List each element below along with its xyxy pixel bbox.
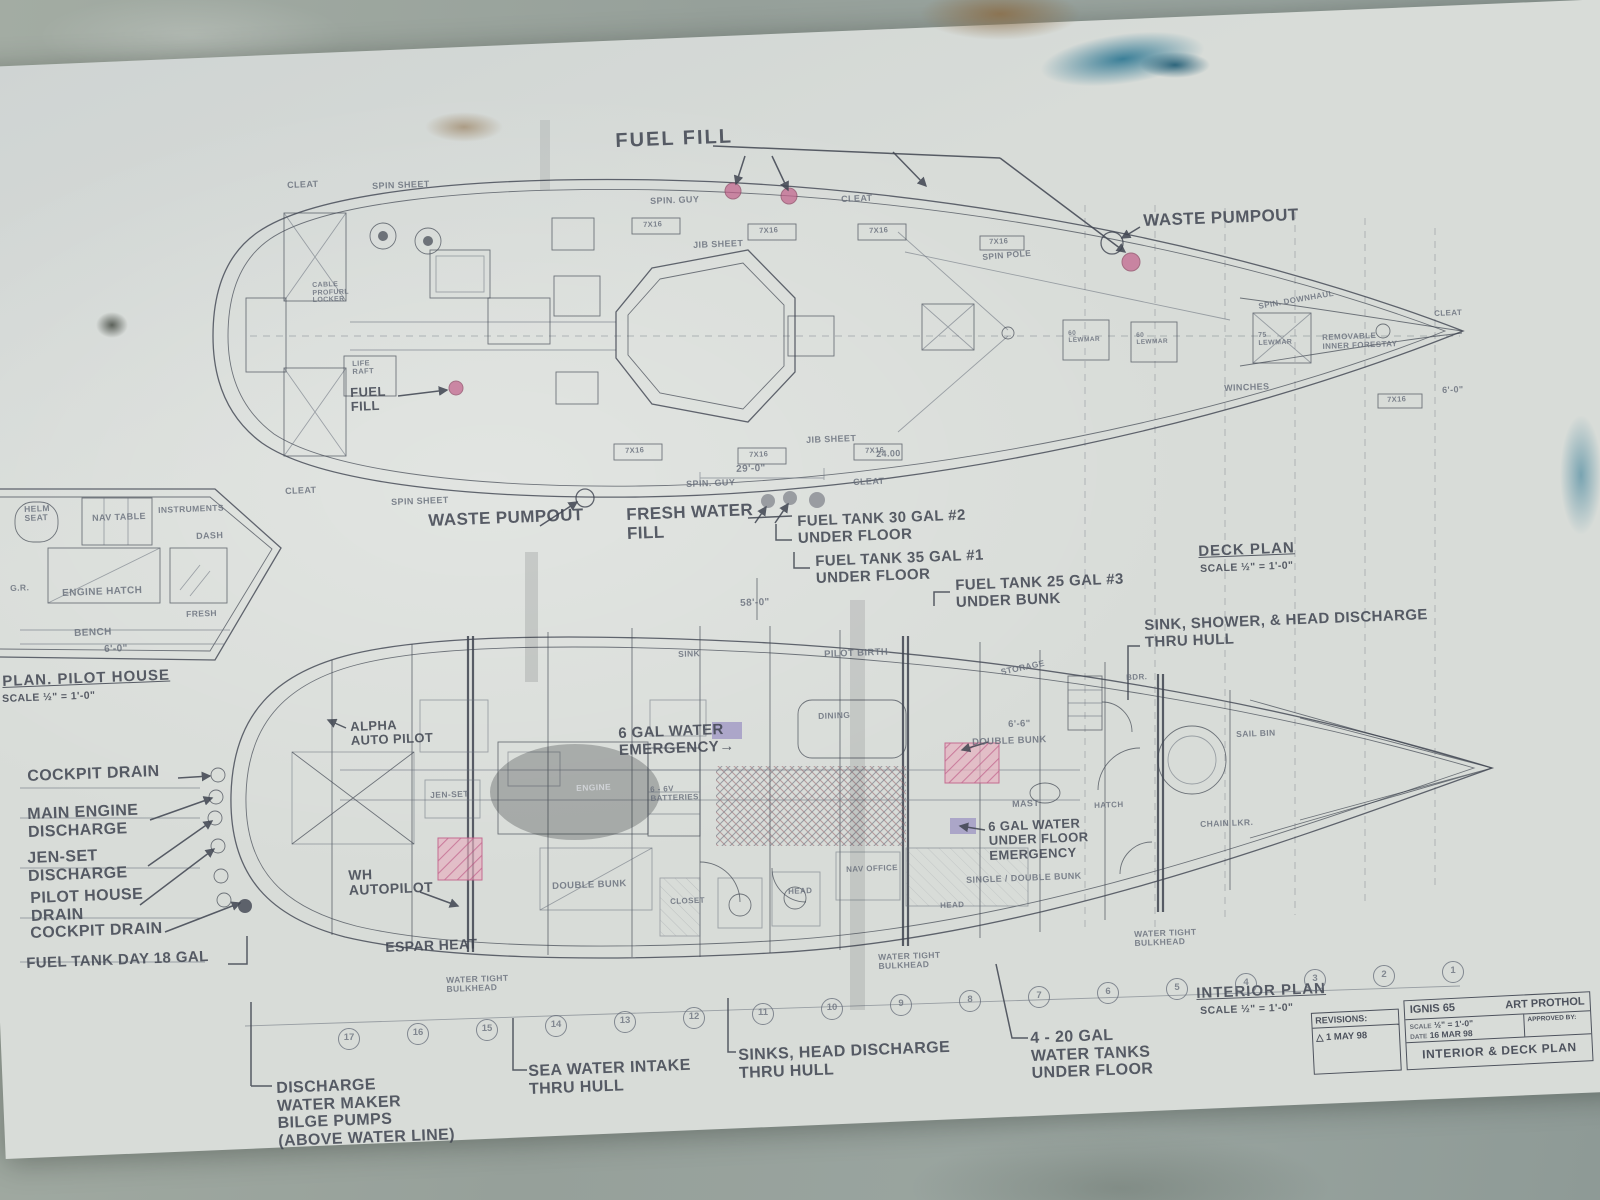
waste-pumpout-callout-right: WASTE PUMPOUT — [1143, 206, 1299, 231]
station-marker: 11 — [752, 1003, 774, 1025]
station-marker: 2 — [1373, 965, 1395, 987]
project-name: IGNIS 65 — [1410, 1002, 1456, 1016]
date-field-value: 16 MAR 98 — [1429, 1028, 1472, 1040]
pilot-berth-label: PILOT BIRTH — [824, 648, 888, 661]
spin-downhaul-label: SPIN. DOWNHAUL — [1258, 290, 1335, 312]
spin-pole-label: SPIN POLE — [982, 249, 1032, 263]
title-block-main: IGNIS 65 ART PROTHOL SCALE ½" = 1'-0" DA… — [1403, 991, 1593, 1070]
cleat-label: CLEAT — [1434, 309, 1462, 319]
life-raft-label: LIFE RAFT — [352, 359, 374, 376]
dash-label: DASH — [196, 531, 223, 542]
gr-label: G.R. — [10, 583, 29, 593]
station-marker: 5 — [1166, 978, 1188, 1000]
sea-water-intake-callout: SEA WATER INTAKE THRU HULL — [528, 1057, 692, 1098]
fuel-tank-2-callout: FUEL TANK 30 GAL #2 UNDER FLOOR — [797, 508, 967, 547]
fuel-fill-side-callout: FUEL FILL — [350, 385, 387, 415]
track-label: 7X16 — [989, 237, 1008, 246]
discharge-watermaker-callout: DISCHARGE WATER MAKER BILGE PUMPS (ABOVE… — [276, 1073, 455, 1150]
fresh-water-fill-callout: FRESH WATER FILL — [626, 501, 754, 543]
nav-office-label: NAV OFFICE — [846, 864, 898, 875]
fresh-label: FRESH — [186, 609, 217, 620]
water-tanks-callout: 4 - 20 GAL WATER TANKS UNDER FLOOR — [1030, 1025, 1154, 1082]
blueprint-photo: FUEL FILL WASTE PUMPOUT FUEL FILL WASTE … — [0, 0, 1600, 1200]
revisions-box: REVISIONS: △ 1 MAY 98 — [1311, 1009, 1402, 1075]
pilot-house-drain-callout: PILOT HOUSE DRAIN — [30, 886, 144, 925]
station-marker: 12 — [683, 1007, 705, 1029]
designer-name: ART PROTHOL — [1505, 995, 1585, 1011]
dim-58: 58'-0" — [740, 597, 770, 609]
pilot-house-caption: PLAN. PILOT HOUSE — [2, 668, 170, 691]
station-marker: 3 — [1304, 969, 1326, 991]
track-label: 7X16 — [749, 450, 768, 459]
dim-2400: 24.00 — [876, 449, 901, 460]
cockpit-drain-callout: COCKPIT DRAIN — [27, 763, 160, 786]
approved-by-label: APPROVED BY: — [1524, 1011, 1591, 1036]
jib-sheet-label: JIB SHEET — [693, 239, 743, 251]
head-label: HEAD — [788, 887, 813, 897]
dim-29: 29'-0" — [736, 463, 766, 475]
watertight-bulkhead-label: WATER TIGHT BULKHEAD — [878, 951, 941, 972]
watertight-bulkhead-label: WATER TIGHT BULKHEAD — [446, 974, 509, 995]
bench-label: BENCH — [74, 627, 112, 639]
cleat-label: CLEAT — [841, 194, 873, 205]
hatch-75-lewmar-label: 75 LEWMAR — [1258, 330, 1299, 347]
track-label: 7X16 — [759, 226, 778, 235]
watertight-bulkhead-label: WATER TIGHT BULKHEAD — [1134, 928, 1197, 949]
station-marker: 6 — [1097, 982, 1119, 1004]
main-engine-discharge-callout: MAIN ENGINE DISCHARGE — [27, 802, 139, 841]
sail-bin-label: SAIL BIN — [1236, 728, 1276, 739]
station-marker: 7 — [1028, 986, 1050, 1008]
deck-plan-scale: SCALE ½" = 1'-0" — [1200, 560, 1294, 575]
station-marker: 14 — [545, 1015, 567, 1037]
interior-plan-scale: SCALE ½" = 1'-0" — [1200, 1002, 1294, 1017]
station-marker: 17 — [338, 1028, 360, 1050]
station-marker: 9 — [890, 994, 912, 1016]
head-discharge-callout: SINK, SHOWER, & HEAD DISCHARGE THRU HULL — [1144, 607, 1429, 651]
revision-entry: △ 1 MAY 98 — [1313, 1025, 1400, 1048]
dining-label: DINING — [818, 711, 850, 722]
dim-60-bow: 6'-0" — [1442, 385, 1464, 396]
sink-label: SINK — [678, 649, 700, 659]
scale-field-label: SCALE — [1410, 1023, 1432, 1031]
alpha-autopilot-callout: ALPHA AUTO PILOT — [350, 717, 434, 749]
dim-66: 6'-6" — [1008, 719, 1031, 730]
title-block: REVISIONS: △ 1 MAY 98 IGNIS 65 ART PROTH… — [1310, 991, 1593, 1075]
double-bunk-label: DOUBLE BUNK — [972, 735, 1047, 748]
fuel-tank-day-callout: FUEL TANK DAY 18 GAL — [26, 949, 209, 972]
single-double-bunk-label: SINGLE / DOUBLE BUNK — [966, 872, 1082, 886]
fuel-tank-3-callout: FUEL TANK 25 GAL #3 UNDER BUNK — [955, 572, 1125, 611]
winches-label: WINCHES — [1224, 382, 1270, 394]
chain-locker-label: CHAIN LKR. — [1200, 818, 1253, 829]
spin-guy-label: SPIN. GUY — [686, 478, 735, 490]
helm-seat-label: HELM SEAT — [24, 504, 50, 524]
cleat-label: CLEAT — [285, 486, 317, 497]
station-marker: 4 — [1235, 973, 1257, 995]
bench-dim: 6'-0" — [104, 643, 128, 655]
water-6gal-floor-callout: 6 GAL WATER UNDER FLOOR EMERGENCY — [988, 816, 1089, 863]
hatch-60-lewmar-label: 60 LEWMAR — [1136, 331, 1175, 347]
sinks-head-discharge-callout: SINKS, HEAD DISCHARGE THRU HULL — [738, 1039, 951, 1082]
station-marker: 8 — [959, 990, 981, 1012]
waste-pumpout-callout-aft: WASTE PUMPOUT — [428, 506, 584, 531]
water-6gal-callout: 6 GAL WATER EMERGENCY→ — [618, 722, 735, 759]
espar-heat-callout: ESPAR HEAT — [385, 936, 478, 955]
cockpit-drain-callout-2: COCKPIT DRAIN — [30, 920, 163, 943]
engine-hatch-label: ENGINE HATCH — [62, 585, 143, 599]
jen-set-room-label: JEN-SET — [430, 790, 469, 801]
wh-autopilot-callout: WH AUTOPILOT — [348, 865, 433, 899]
batteries-label: 6 - 6V BATTERIES — [650, 784, 699, 803]
cleat-label: CLEAT — [287, 180, 319, 191]
storage-label: STORAGE — [1000, 659, 1046, 677]
bdr-label: BDR. — [1126, 673, 1147, 683]
station-marker: 13 — [614, 1011, 636, 1033]
head-label: HEAD — [940, 901, 965, 911]
forestay-label: REMOVABLE INNER FORESTAY — [1322, 331, 1398, 351]
track-label: 7X16 — [1387, 395, 1406, 404]
double-bunk-2-label: DOUBLE BUNK — [552, 879, 627, 892]
spin-sheet-label: SPIN SHEET — [372, 180, 430, 192]
cleat-label: CLEAT — [853, 477, 885, 488]
station-marker: 10 — [821, 998, 843, 1020]
station-marker: 1 — [1442, 961, 1464, 983]
jib-sheet-label: JIB SHEET — [806, 434, 856, 446]
hatch-label: HATCH — [1094, 801, 1124, 811]
track-label: 7X16 — [625, 446, 644, 455]
closet-label: CLOSET — [670, 897, 705, 907]
spin-guy-label: SPIN. GUY — [650, 195, 699, 207]
station-marker: 15 — [476, 1019, 498, 1041]
date-field-label: DATE — [1410, 1033, 1428, 1041]
fuel-fill-callout: FUEL FILL — [615, 125, 733, 151]
engine-room-label: ENGINE — [576, 783, 611, 794]
pilot-house-scale: SCALE ½" = 1'-0" — [2, 690, 96, 705]
locker-label: CABLE PROFURL LOCKER — [312, 281, 349, 305]
hatch-60-lewmar-label: 60 LEWMAR — [1068, 329, 1107, 345]
track-label: 7X16 — [643, 220, 662, 229]
spin-sheet-label: SPIN SHEET — [391, 496, 449, 508]
instruments-label: INSTRUMENTS — [158, 503, 224, 515]
mast-label: MAST — [1012, 799, 1039, 810]
jen-set-discharge-callout: JEN-SET DISCHARGE — [27, 846, 128, 885]
track-label: 7X16 — [869, 226, 888, 235]
deck-plan-caption: DECK PLAN — [1198, 540, 1295, 560]
station-marker: 16 — [407, 1023, 429, 1045]
nav-table-label: NAV TABLE — [92, 512, 146, 524]
